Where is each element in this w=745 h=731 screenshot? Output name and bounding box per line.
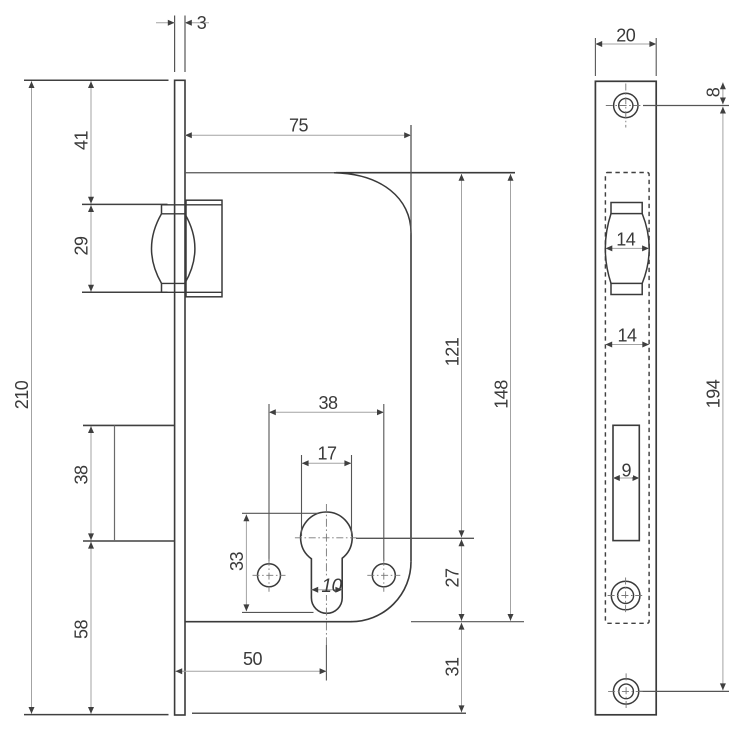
- svg-text:14: 14: [616, 229, 636, 249]
- svg-text:17: 17: [317, 443, 337, 463]
- svg-text:3: 3: [197, 13, 207, 33]
- svg-text:20: 20: [616, 25, 636, 45]
- svg-text:41: 41: [72, 131, 92, 151]
- svg-text:75: 75: [289, 116, 309, 136]
- svg-text:58: 58: [72, 620, 92, 640]
- svg-text:121: 121: [442, 337, 462, 366]
- svg-text:14: 14: [617, 325, 637, 345]
- svg-text:38: 38: [72, 465, 92, 485]
- svg-text:38: 38: [318, 393, 338, 413]
- svg-text:148: 148: [491, 380, 511, 409]
- svg-text:10: 10: [321, 576, 342, 597]
- svg-text:33: 33: [227, 552, 247, 572]
- svg-text:9: 9: [622, 461, 632, 481]
- svg-text:29: 29: [72, 236, 92, 256]
- svg-text:27: 27: [442, 568, 462, 588]
- svg-text:8: 8: [704, 87, 724, 97]
- svg-text:31: 31: [442, 657, 462, 677]
- svg-text:210: 210: [12, 380, 32, 409]
- svg-text:194: 194: [704, 379, 724, 408]
- svg-text:50: 50: [243, 649, 263, 669]
